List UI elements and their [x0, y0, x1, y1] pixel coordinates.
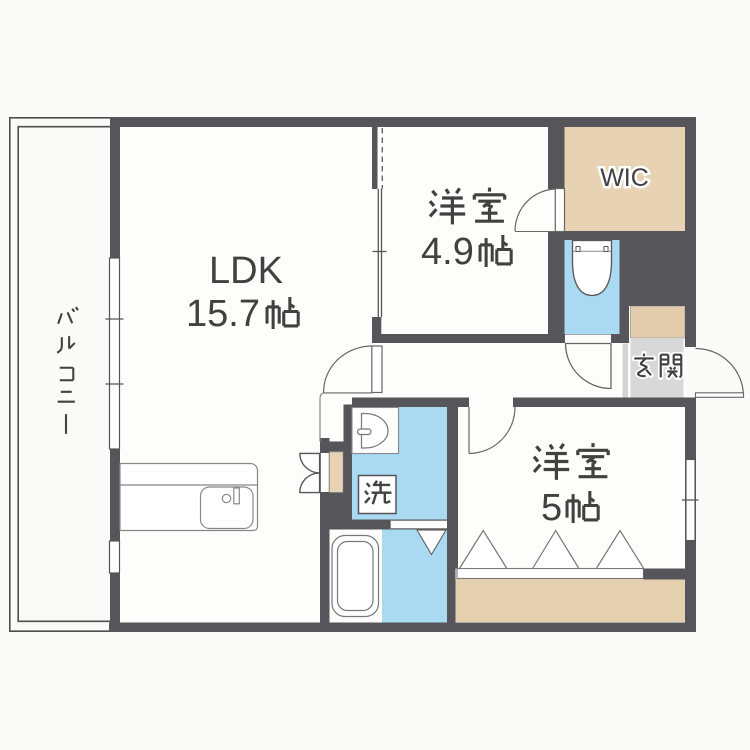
svg-text:5: 5 — [541, 487, 562, 529]
svg-text:4.9: 4.9 — [421, 231, 474, 273]
svg-text:LDK: LDK — [209, 250, 283, 292]
svg-text:15.7: 15.7 — [186, 293, 260, 335]
svg-text:WIC: WIC — [600, 164, 649, 192]
